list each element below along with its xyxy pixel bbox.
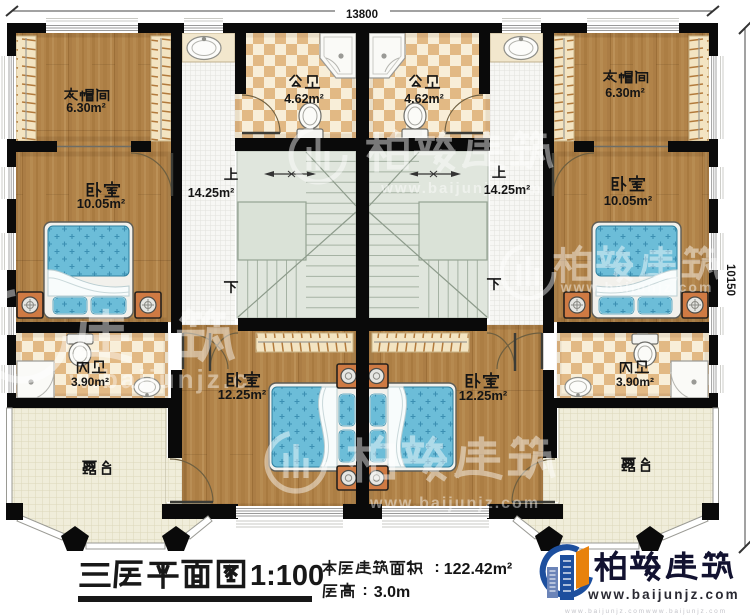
- svg-text:10.05m²: 10.05m²: [77, 196, 126, 211]
- svg-text:www.baijunjz.com: www.baijunjz.com: [587, 587, 740, 602]
- svg-text:www.baijunjz.com: www.baijunjz.com: [369, 495, 540, 512]
- svg-text:10150: 10150: [724, 264, 736, 296]
- svg-text:3.0m: 3.0m: [374, 584, 410, 601]
- svg-text:www.baijunjz.com: www.baijunjz.com: [560, 279, 714, 295]
- svg-text:6.30m²: 6.30m²: [605, 86, 645, 100]
- svg-text:10.05m²: 10.05m²: [604, 193, 653, 208]
- svg-text:3.90m²: 3.90m²: [616, 375, 654, 389]
- svg-text:12.25m²: 12.25m²: [218, 387, 267, 402]
- svg-text:14.25m²: 14.25m²: [188, 186, 235, 200]
- svg-text:1:100: 1:100: [250, 560, 324, 592]
- svg-text:3.90m²: 3.90m²: [71, 375, 109, 389]
- svg-text:4.62m²: 4.62m²: [284, 92, 324, 106]
- svg-text::: :: [434, 559, 439, 576]
- svg-text:4.62m²: 4.62m²: [404, 92, 444, 106]
- svg-text:122.42m²: 122.42m²: [444, 561, 513, 578]
- svg-text:14.25m²: 14.25m²: [484, 183, 531, 197]
- svg-text:13800: 13800: [346, 9, 378, 21]
- svg-text:w w w . b a i j u n j z . c o: w w w . b a i j u n j z . c o m w w w . …: [564, 608, 725, 615]
- svg-text:6.30m²: 6.30m²: [66, 101, 106, 115]
- svg-text::: :: [362, 582, 367, 599]
- svg-text:12.25m²: 12.25m²: [459, 388, 508, 403]
